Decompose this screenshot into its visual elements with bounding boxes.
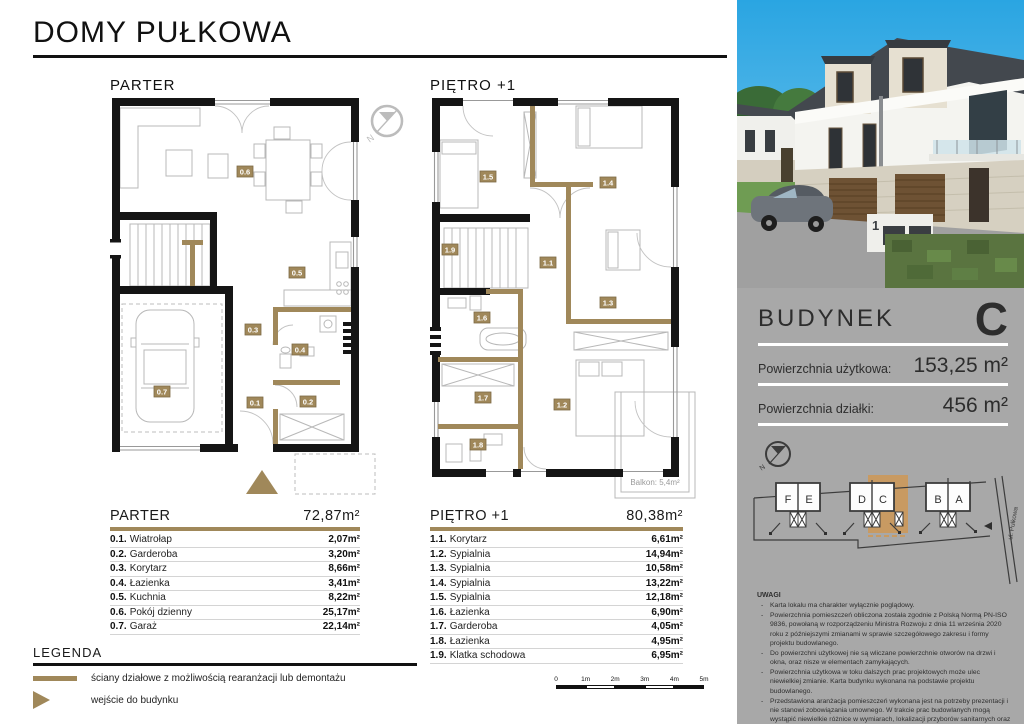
room-num: 1.1. [430, 534, 447, 546]
room-num: 0.1. [110, 534, 127, 546]
room-name: Garderoba [130, 549, 329, 561]
building-render-photo: 1 [737, 0, 1024, 288]
room-label: 0.3 [248, 326, 258, 335]
room-label: 0.5 [292, 269, 302, 278]
note-item: Karta lokalu ma charakter wyłącznie pogl… [757, 601, 1012, 610]
site-plan: N F [740, 436, 1020, 588]
entry-hatches [790, 512, 956, 527]
notes-title: UWAGI [757, 592, 1012, 599]
plot-area-label: Powierzchnia działki: [758, 402, 874, 418]
building-letter: D [858, 494, 866, 506]
room-num: 1.2. [430, 549, 447, 561]
scale-tick: 5m [699, 676, 708, 683]
stairs [444, 228, 528, 288]
room-name: Łazienka [130, 578, 329, 590]
building-letter: C [975, 300, 1008, 339]
hedge [885, 234, 1024, 288]
legend: LEGENDA ściany działowe z możliwością re… [33, 645, 417, 709]
floorplan-parter: 0.1 0.2 0.3 0.4 0.5 0.6 0.7 [108, 92, 380, 499]
balcony-label: Balkon: 5,4m² [630, 478, 680, 487]
room-row: 0.4.Łazienka3,41m² [110, 577, 360, 592]
room-row: 1.8.Łazienka4,95m² [430, 635, 683, 650]
room-name: Sypialnia [450, 563, 646, 575]
room-name: Klatka schodowa [450, 650, 652, 662]
partition-wall-swatch-icon [33, 676, 77, 681]
floorplan-pietro: Balkon: 5,4m² [428, 92, 703, 507]
room-num: 1.8. [430, 636, 447, 648]
entrance-arrow-icon [33, 691, 50, 709]
building-letter: E [805, 494, 812, 506]
partition-walls [182, 240, 351, 444]
street-label: ul. Pułkowa [1007, 506, 1020, 540]
room-name: Sypialnia [450, 549, 646, 561]
room-row: 1.5.Sypialnia12,18m² [430, 591, 683, 606]
building-letter: B [934, 494, 941, 506]
room-num: 0.2. [110, 549, 127, 561]
room-name: Sypialnia [450, 592, 646, 604]
room-row: 1.7.Garderoba4,05m² [430, 620, 683, 635]
scale-tick: 1m [581, 676, 590, 683]
room-num: 0.6. [110, 607, 127, 619]
room-num: 0.7. [110, 621, 127, 633]
street: ul. Pułkowa [984, 476, 1020, 584]
room-area: 6,61m² [651, 534, 683, 546]
scale-tick: 0 [554, 676, 558, 683]
room-row: 0.1.Wiatrołap2,07m² [110, 533, 360, 548]
legend-item-label: wejście do budynku [91, 695, 178, 706]
street-entrance-arrow [984, 522, 992, 530]
parter-summary: PARTER 72,87m² 0.1.Wiatrołap2,07m² 0.2.G… [110, 508, 360, 635]
room-area: 10,58m² [646, 563, 683, 575]
room-label: 1.1 [543, 259, 553, 268]
room-label: 1.7 [478, 394, 488, 403]
room-label: 1.2 [557, 401, 567, 410]
room-area: 8,66m² [328, 563, 360, 575]
pietro-summary-title: PIĘTRO +1 [430, 508, 509, 524]
room-name: Kuchnia [130, 592, 329, 604]
room-row: 1.2.Sypialnia14,94m² [430, 548, 683, 563]
page-title: DOMY PUŁKOWA [33, 16, 292, 50]
room-area: 13,22m² [646, 578, 683, 590]
room-area: 6,95m² [651, 650, 683, 662]
room-num: 0.3. [110, 563, 127, 575]
room-name: Pokój dzienny [130, 607, 323, 619]
scale-bar: 0 1m 2m 3m 4m 5m [556, 676, 706, 696]
usable-area-label: Powierzchnia użytkowa: [758, 362, 891, 378]
room-num: 1.3. [430, 563, 447, 575]
room-label: 0.6 [240, 168, 250, 177]
room-num: 1.4. [430, 578, 447, 590]
balcony-outline: Balkon: 5,4m² [615, 392, 695, 498]
parter-summary-title: PARTER [110, 508, 170, 524]
room-row: 0.3.Korytarz8,66m² [110, 562, 360, 577]
header-rule [33, 55, 727, 58]
scale-tick: 4m [670, 676, 679, 683]
room-area: 4,95m² [651, 636, 683, 648]
room-area: 14,94m² [646, 549, 683, 561]
pietro-summary: PIĘTRO +1 80,38m² 1.1.Korytarz6,61m² 1.2… [430, 508, 683, 664]
parter-total-area: 72,87m² [303, 508, 360, 524]
plot-area-row: Powierzchnia działki: 456 m² [758, 386, 1008, 426]
stairs [130, 224, 210, 286]
room-label: 1.8 [473, 441, 483, 450]
room-area: 25,17m² [323, 607, 360, 619]
room-name: Łazienka [450, 607, 652, 619]
right-panel: 1 BUDYNEK C Powierzchnia użytkowa: 153,2… [737, 0, 1024, 724]
room-row: 1.9.Klatka schodowa6,95m² [430, 649, 683, 664]
room-area: 2,07m² [328, 534, 360, 546]
usable-area-row: Powierzchnia użytkowa: 153,25 m² [758, 346, 1008, 386]
room-row: 1.6.Łazienka6,90m² [430, 606, 683, 621]
building-letter: F [785, 494, 792, 506]
room-name: Łazienka [450, 636, 652, 648]
room-row: 0.5.Kuchnia8,22m² [110, 591, 360, 606]
building-name-row: BUDYNEK C [758, 300, 1008, 346]
note-item: Powierzchnia pomieszczeń obliczona zosta… [757, 611, 1012, 648]
room-label: 0.2 [303, 398, 313, 407]
room-area: 22,14m² [323, 621, 360, 633]
room-area: 4,05m² [651, 621, 683, 633]
room-num: 1.6. [430, 607, 447, 619]
car [131, 310, 199, 422]
room-name: Wiatrołap [130, 534, 329, 546]
scale-tick: 2m [611, 676, 620, 683]
room-area: 8,22m² [328, 592, 360, 604]
legend-item: ściany działowe z możliwością rearanżacj… [33, 673, 417, 684]
room-area: 3,20m² [328, 549, 360, 561]
room-num: 0.4. [110, 578, 127, 590]
room-label: 1.6 [477, 314, 487, 323]
room-label: 1.4 [603, 179, 614, 188]
plot-area-value: 456 m² [943, 394, 1008, 418]
building-letter: C [879, 494, 887, 506]
note-item: Powierzchnia użytkowa w toku dalszych pr… [757, 668, 1012, 696]
room-row: 0.6.Pokój dzienny25,17m² [110, 606, 360, 621]
notes-list: Karta lokalu ma charakter wyłącznie pogl… [757, 601, 1012, 724]
room-name: Korytarz [130, 563, 329, 575]
neighbor-house [737, 104, 795, 188]
room-name: Sypialnia [450, 578, 646, 590]
note-item: Przedstawiona aranżacja pomieszczeń wyko… [757, 697, 1012, 724]
room-row: 0.2.Garderoba3,20m² [110, 548, 360, 563]
room-name: Garderoba [450, 621, 652, 633]
room-num: 1.7. [430, 621, 447, 633]
room-row: 1.4.Sypialnia13,22m² [430, 577, 683, 592]
living-room-furniture [120, 108, 322, 213]
room-num: 0.5. [110, 592, 127, 604]
room-area: 6,90m² [651, 607, 683, 619]
legend-item: wejście do budynku [33, 691, 417, 709]
room-label: 0.4 [295, 346, 306, 355]
building-letter: A [955, 494, 963, 506]
building-blocks: F E D C B A [776, 483, 970, 511]
room-row: 1.1.Korytarz6,61m² [430, 533, 683, 548]
pietro-summary-header: PIĘTRO +1 80,38m² [430, 508, 683, 531]
notes: UWAGI Karta lokalu ma charakter wyłączni… [757, 592, 1012, 724]
building-info: BUDYNEK C Powierzchnia użytkowa: 153,25 … [758, 300, 1008, 426]
room-area: 3,41m² [328, 578, 360, 590]
note-item: Do powierzchni użytkowej nie są wliczane… [757, 649, 1012, 667]
site-compass-icon: N [759, 442, 790, 472]
room-label: 1.9 [445, 246, 455, 255]
house-number: 1 [872, 218, 879, 233]
room-name: Korytarz [450, 534, 652, 546]
room-name: Garaż [130, 621, 323, 633]
room-num: 1.9. [430, 650, 447, 662]
room-area: 12,18m² [646, 592, 683, 604]
parter-summary-header: PARTER 72,87m² [110, 508, 360, 531]
north-label: N [759, 464, 767, 473]
legend-item-label: ściany działowe z możliwością rearanżacj… [91, 673, 346, 684]
entrance-arrow [246, 470, 278, 494]
usable-area-value: 153,25 m² [913, 354, 1008, 378]
room-label: 0.7 [157, 388, 167, 397]
scale-tick: 3m [640, 676, 649, 683]
room-num: 1.5. [430, 592, 447, 604]
pietro-total-area: 80,38m² [626, 508, 683, 524]
room-label: 0.1 [250, 399, 260, 408]
bathroom-fixtures [280, 316, 344, 440]
room-number-labels: 1.1 1.2 1.3 1.4 1.5 1.6 1.7 1.8 1.9 [442, 171, 616, 450]
room-row: 0.7.Garaż22,14m² [110, 620, 360, 635]
property-card: DOMY PUŁKOWA PARTER PIĘTRO +1 N [0, 0, 1024, 724]
room-label: 1.5 [483, 173, 493, 182]
room-row: 1.3.Sypialnia10,58m² [430, 562, 683, 577]
legend-title: LEGENDA [33, 645, 417, 666]
building-name-label: BUDYNEK [758, 305, 895, 339]
room-label: 1.3 [603, 299, 613, 308]
